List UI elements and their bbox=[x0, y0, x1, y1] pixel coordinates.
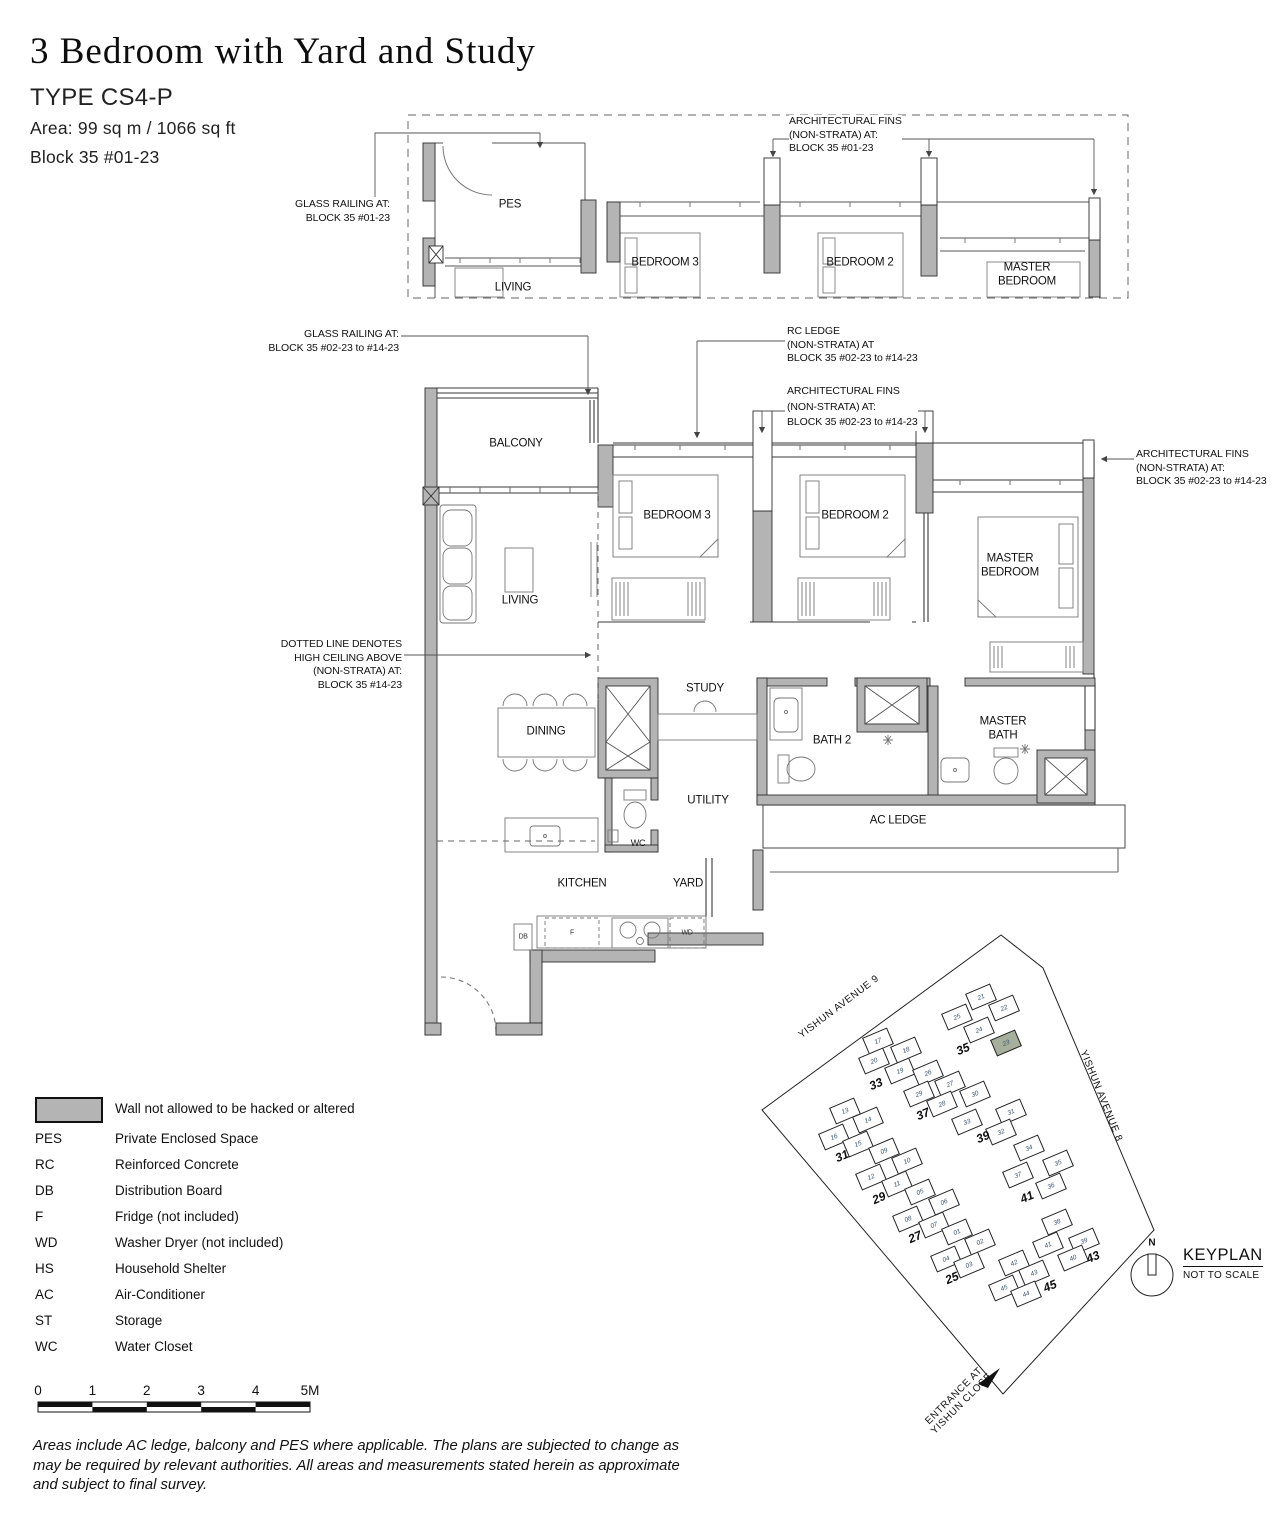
legend-entry-wc: WCWater Closet bbox=[35, 1339, 435, 1359]
legend-desc: Fridge (not included) bbox=[115, 1209, 239, 1224]
legend-key: WD bbox=[35, 1235, 58, 1250]
room-bedroom3: BEDROOM 3 bbox=[643, 509, 710, 523]
room-kitchen: KITCHEN bbox=[557, 877, 606, 891]
scale-label-4: 4 bbox=[252, 1383, 260, 1398]
keyplan-title: KEYPLAN bbox=[1183, 1246, 1263, 1267]
legend-wall-swatch bbox=[35, 1097, 103, 1123]
scale-label-0: 0 bbox=[34, 1383, 42, 1398]
legend-key: DB bbox=[35, 1183, 54, 1198]
legend-entry-db: DBDistribution Board bbox=[35, 1183, 435, 1203]
annotation-glass-railing-upper: GLASS RAILING AT: BLOCK 35 #01-23 bbox=[295, 198, 390, 225]
legend-entry-rc: RCReinforced Concrete bbox=[35, 1157, 435, 1177]
legend-desc: Household Shelter bbox=[115, 1261, 226, 1276]
legend-entry-hs: HSHousehold Shelter bbox=[35, 1261, 435, 1281]
scale-label-5M: 5M bbox=[301, 1383, 320, 1398]
keyplan-subtitle: NOT TO SCALE bbox=[1183, 1270, 1259, 1281]
fixture-wd: WD bbox=[681, 930, 692, 937]
scale-label-3: 3 bbox=[197, 1383, 205, 1398]
annotation-rc-ledge: RC LEDGE (NON-STRATA) AT BLOCK 35 #02-23… bbox=[787, 325, 918, 366]
floorplan-page: 3 Bedroom with Yard and Study TYPE CS4-P… bbox=[0, 0, 1285, 1523]
legend-key: AC bbox=[35, 1287, 54, 1302]
fixture-fridge: F bbox=[570, 930, 574, 937]
room-utility: UTILITY bbox=[687, 794, 728, 808]
annotation-high-ceiling: DOTTED LINE DENOTES HIGH CEILING ABOVE (… bbox=[281, 638, 402, 692]
legend-entry-ac: ACAir-Conditioner bbox=[35, 1287, 435, 1307]
legend-entry-pes: PESPrivate Enclosed Space bbox=[35, 1131, 435, 1151]
legend-key: F bbox=[35, 1209, 43, 1224]
legend-entry-f: FFridge (not included) bbox=[35, 1209, 435, 1229]
room-study: STUDY bbox=[686, 682, 724, 696]
room-yard: YARD bbox=[673, 877, 703, 891]
legend-entry-wd: WDWasher Dryer (not included) bbox=[35, 1235, 435, 1255]
annotation-arch-fins-upper: ARCHITECTURAL FINS (NON-STRATA) AT: BLOC… bbox=[789, 115, 902, 156]
block-label: Block 35 #01-23 bbox=[30, 147, 159, 168]
fixture-db: DB bbox=[518, 934, 527, 941]
area-label: Area: 99 sq m / 1066 sq ft bbox=[30, 118, 236, 139]
room-dining: DINING bbox=[526, 725, 565, 739]
legend-desc: Washer Dryer (not included) bbox=[115, 1235, 283, 1250]
north-indicator-label: N bbox=[1148, 1238, 1155, 1249]
room-master-bath: MASTER BATH bbox=[980, 716, 1027, 743]
legend-desc: Private Enclosed Space bbox=[115, 1131, 258, 1146]
room-bath2: BATH 2 bbox=[813, 734, 851, 748]
legend-entry-st: STStorage bbox=[35, 1313, 435, 1333]
legend-key: RC bbox=[35, 1157, 55, 1172]
legend-key: WC bbox=[35, 1339, 58, 1354]
legend-key: HS bbox=[35, 1261, 54, 1276]
room-living: LIVING bbox=[502, 594, 539, 608]
room-bedroom2: BEDROOM 2 bbox=[821, 509, 888, 523]
annotation-arch-fins-right: ARCHITECTURAL FINS (NON-STRATA) AT: BLOC… bbox=[1136, 448, 1267, 489]
legend-desc: Storage bbox=[115, 1313, 162, 1328]
unit-type-label: TYPE CS4-P bbox=[30, 84, 173, 112]
disclaimer-text: Areas include AC ledge, balcony and PES … bbox=[33, 1437, 693, 1496]
legend-desc: Distribution Board bbox=[115, 1183, 222, 1198]
legend-key: ST bbox=[35, 1313, 52, 1328]
annotation-arch-fins-top: ARCHITECTURAL FINS (NON-STRATA) AT: BLOC… bbox=[787, 384, 918, 431]
legend-key: PES bbox=[35, 1131, 62, 1146]
legend-desc: Reinforced Concrete bbox=[115, 1157, 239, 1172]
room-ac-ledge: AC LEDGE bbox=[870, 814, 927, 828]
legend-desc: Water Closet bbox=[115, 1339, 193, 1354]
scale-label-1: 1 bbox=[89, 1383, 97, 1398]
upper-room-bedroom3: BEDROOM 3 bbox=[631, 256, 698, 270]
legend-wall-note: Wall not allowed to be hacked or altered bbox=[115, 1101, 355, 1116]
scale-label-2: 2 bbox=[143, 1383, 151, 1398]
legend-desc: Air-Conditioner bbox=[115, 1287, 205, 1302]
upper-room-master-bedroom: MASTER BEDROOM bbox=[998, 262, 1056, 289]
room-wc: WC bbox=[631, 838, 646, 848]
page-title: 3 Bedroom with Yard and Study bbox=[30, 30, 536, 73]
upper-room-living: LIVING bbox=[495, 281, 532, 295]
annotation-glass-railing-main: GLASS RAILING AT: BLOCK 35 #02-23 to #14… bbox=[268, 328, 399, 355]
room-balcony: BALCONY bbox=[489, 437, 543, 451]
upper-room-pes: PES bbox=[499, 198, 521, 212]
room-master-bedroom: MASTER BEDROOM bbox=[981, 553, 1039, 580]
upper-room-bedroom2: BEDROOM 2 bbox=[826, 256, 893, 270]
